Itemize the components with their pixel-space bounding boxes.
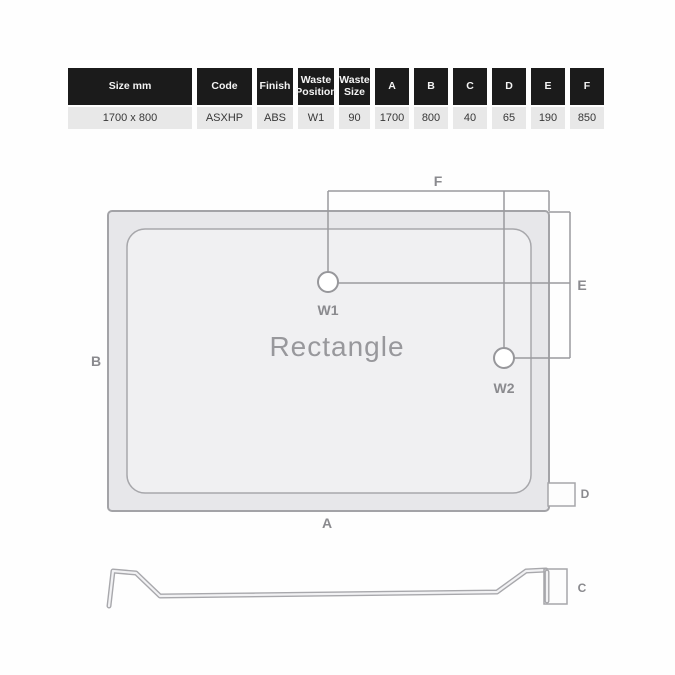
dim-label-f: F (434, 173, 443, 189)
corner-detail-box (548, 483, 575, 506)
dim-label-c: C (578, 581, 587, 595)
waste-outlet-w2 (494, 348, 514, 368)
tray-shape-title: Rectangle (269, 331, 404, 363)
dim-label-d: D (581, 487, 590, 501)
label-w1: W1 (318, 302, 339, 318)
dim-label-b: B (91, 353, 101, 369)
profile-wall-outer (109, 570, 546, 606)
dim-label-a: A (322, 515, 332, 531)
profile-wall-inner (109, 570, 546, 606)
waste-outlet-w1 (318, 272, 338, 292)
label-w2: W2 (494, 380, 515, 396)
dim-label-e: E (577, 277, 586, 293)
